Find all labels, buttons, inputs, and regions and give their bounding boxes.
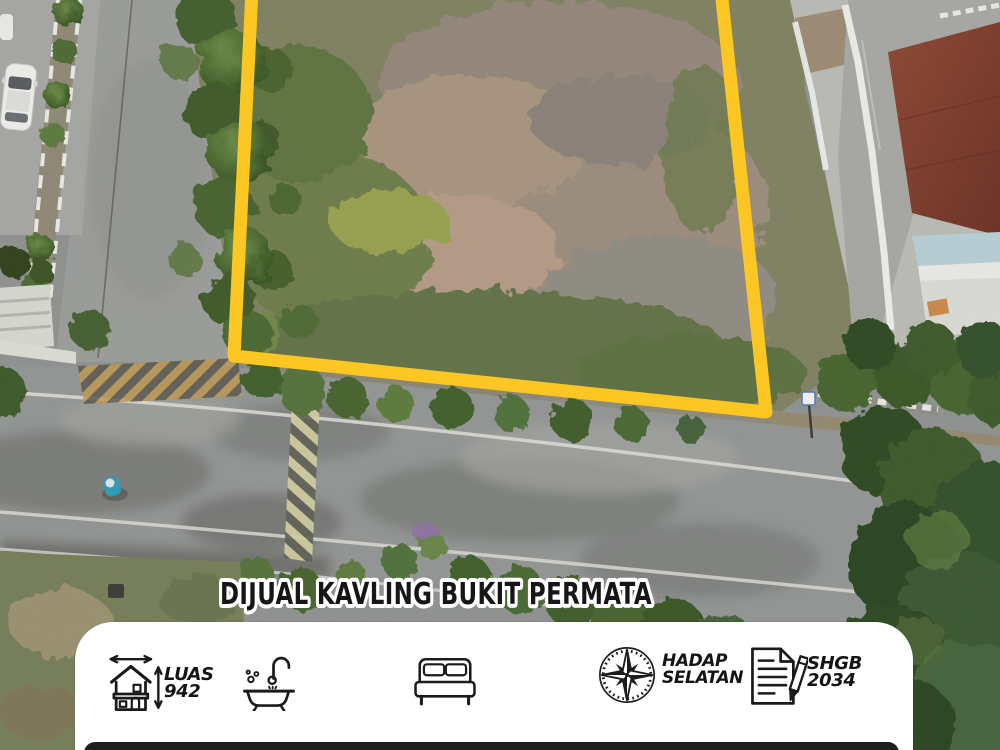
- shgb-value: 2034: [807, 672, 862, 689]
- compass-icon: [598, 646, 656, 704]
- feature-bathroom: [241, 655, 297, 711]
- bottom-bar: [84, 742, 899, 750]
- feature-bedroom: [413, 656, 477, 708]
- hadap-value: SELATAN: [662, 670, 743, 687]
- poster-title: DIJUAL KAVLING BUKIT PERMATA: [220, 577, 652, 612]
- feature-certificate: [746, 647, 808, 707]
- bathtub-icon: [241, 655, 297, 711]
- luas-value: 942: [164, 683, 214, 700]
- deed-document-icon: [746, 647, 808, 707]
- property-listing-poster: DIJUAL KAVLING BUKIT PERMATA LUAS 942: [0, 0, 1000, 750]
- bed-icon: [413, 656, 477, 708]
- feature-orientation: [598, 646, 656, 704]
- property-info-card: LUAS 942: [75, 622, 913, 750]
